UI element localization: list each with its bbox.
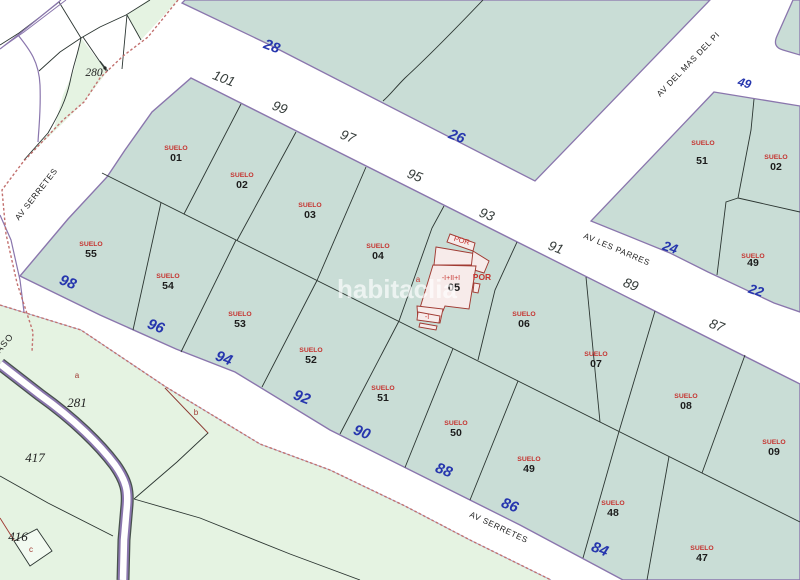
svg-text:07: 07: [590, 358, 602, 370]
svg-text:55: 55: [85, 248, 97, 260]
svg-text:01: 01: [170, 152, 182, 164]
svg-text:SUELO: SUELO: [690, 545, 713, 552]
svg-text:SUELO: SUELO: [584, 351, 607, 358]
svg-text:SUELO: SUELO: [512, 311, 535, 318]
svg-text:54: 54: [162, 280, 174, 292]
svg-text:49: 49: [523, 463, 535, 475]
svg-text:SUELO: SUELO: [371, 385, 394, 392]
svg-text:417: 417: [25, 450, 45, 465]
svg-text:SUELO: SUELO: [444, 420, 467, 427]
svg-text:53: 53: [234, 318, 246, 330]
svg-text:c: c: [29, 545, 33, 554]
svg-text:416: 416: [8, 529, 28, 544]
svg-text:08: 08: [680, 400, 692, 412]
svg-text:SUELO: SUELO: [228, 311, 251, 318]
svg-text:51: 51: [696, 155, 708, 167]
svg-text:a: a: [75, 371, 80, 380]
svg-text:SUELO: SUELO: [691, 140, 714, 147]
svg-text:281: 281: [67, 395, 87, 410]
svg-text:SUELO: SUELO: [674, 393, 697, 400]
svg-text:SUELO: SUELO: [298, 202, 321, 209]
svg-text:habitaclia: habitaclia: [337, 274, 457, 304]
svg-text:-I: -I: [425, 314, 429, 321]
svg-text:SUELO: SUELO: [366, 243, 389, 250]
svg-text:52: 52: [305, 354, 317, 366]
svg-text:02: 02: [770, 161, 782, 173]
svg-text:SUELO: SUELO: [79, 241, 102, 248]
svg-text:SUELO: SUELO: [601, 500, 624, 507]
svg-text:50: 50: [450, 427, 462, 439]
svg-text:SUELO: SUELO: [299, 347, 322, 354]
svg-text:02: 02: [236, 179, 248, 191]
svg-text:SUELO: SUELO: [230, 172, 253, 179]
svg-text:03: 03: [304, 209, 316, 221]
svg-text:47: 47: [696, 552, 708, 564]
svg-text:SUELO: SUELO: [164, 145, 187, 152]
svg-text:49: 49: [747, 257, 759, 269]
svg-text:SUELO: SUELO: [156, 273, 179, 280]
svg-text:06: 06: [518, 318, 530, 330]
svg-text:POR: POR: [473, 272, 491, 282]
svg-text:SUELO: SUELO: [762, 439, 785, 446]
svg-text:b: b: [194, 408, 199, 417]
svg-text:51: 51: [377, 392, 389, 404]
svg-text:280: 280: [85, 67, 103, 79]
svg-text:SUELO: SUELO: [764, 154, 787, 161]
svg-text:48: 48: [607, 507, 619, 519]
svg-text:09: 09: [768, 446, 780, 458]
svg-text:SUELO: SUELO: [517, 456, 540, 463]
svg-text:04: 04: [372, 250, 384, 262]
